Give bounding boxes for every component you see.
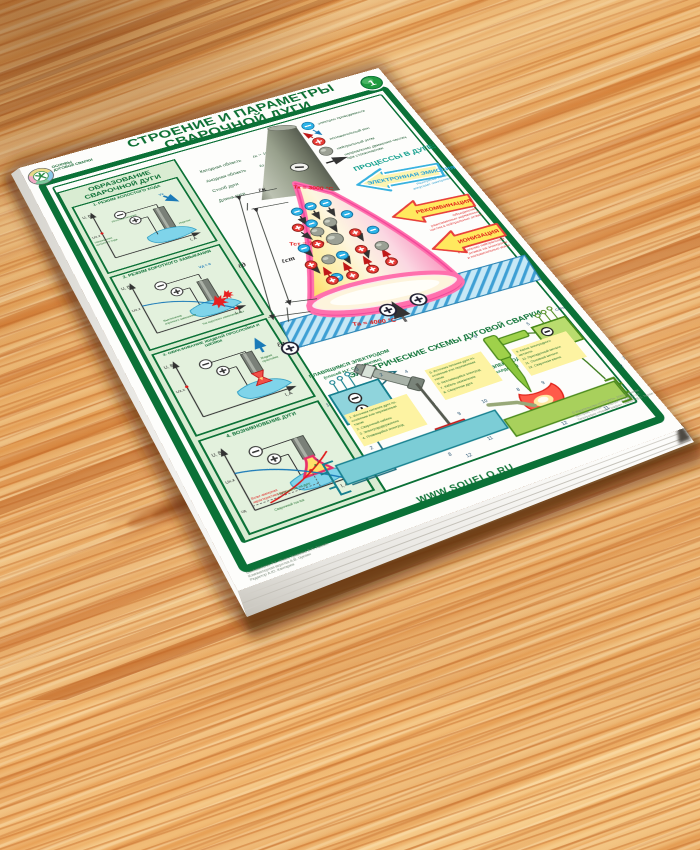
svg-text:9: 9 bbox=[540, 381, 546, 386]
svg-text:электрон проводимости: электрон проводимости bbox=[316, 109, 365, 126]
svg-text:Столб дуги: Столб дуги bbox=[211, 182, 240, 193]
svg-text:8: 8 bbox=[447, 452, 453, 457]
svg-text:8: 8 bbox=[516, 387, 522, 392]
svg-text:2: 2 bbox=[369, 446, 374, 451]
svg-text:1: 1 bbox=[325, 403, 330, 408]
svg-text:4: 4 bbox=[404, 370, 409, 375]
svg-text:7: 7 bbox=[315, 459, 320, 464]
svg-text:2: 2 bbox=[619, 364, 625, 369]
svg-text:11: 11 bbox=[486, 436, 494, 442]
svg-text:5: 5 bbox=[526, 322, 531, 326]
svg-text:Длина дуги: Длина дуги bbox=[218, 191, 247, 203]
svg-text:9: 9 bbox=[457, 411, 462, 416]
svg-text:ℓст: ℓст bbox=[279, 255, 297, 265]
svg-text:12: 12 bbox=[561, 420, 569, 426]
svg-text:ℓд: ℓд bbox=[235, 262, 248, 271]
svg-text:12: 12 bbox=[465, 452, 473, 458]
svg-text:Сеть: Сеть bbox=[554, 305, 566, 312]
